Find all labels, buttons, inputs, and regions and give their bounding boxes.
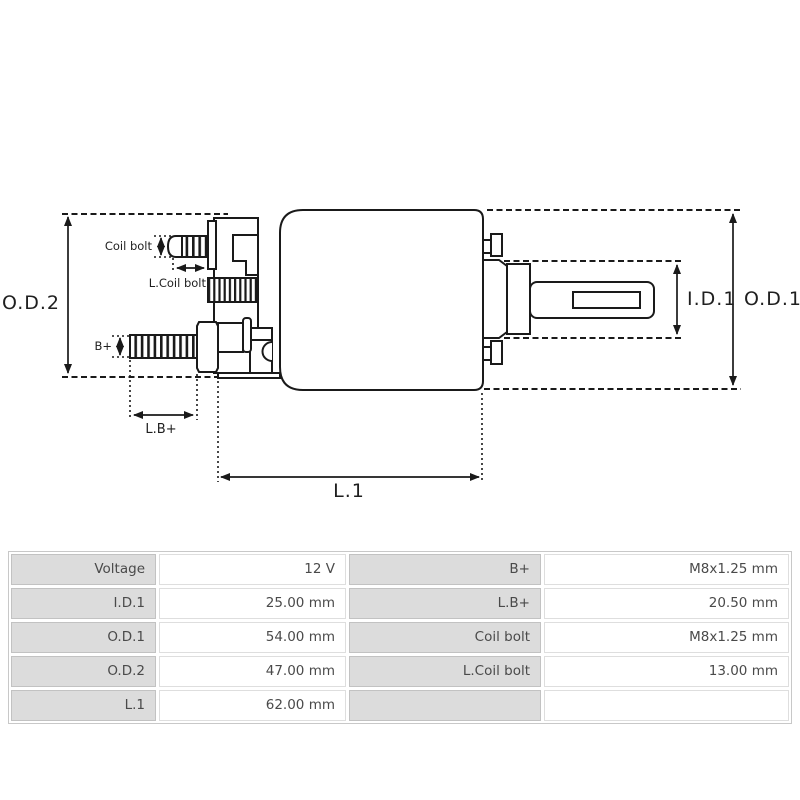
spec-label-coilbolt: Coil bolt <box>349 622 541 653</box>
spec-label-lcoilbolt: L.Coil bolt <box>349 656 541 687</box>
spec-value-lcoilbolt: 13.00 mm <box>544 656 789 687</box>
shaft-slot <box>573 292 640 308</box>
od1-label: O.D.1 <box>744 288 800 310</box>
spec-label-bplus: B+ <box>349 554 541 585</box>
solenoid-body <box>280 210 483 390</box>
spec-value-bplus: M8x1.25 mm <box>544 554 789 585</box>
page: O.D.2 O.D.1 I.D.1 L.1 Coil bolt L.Coil b… <box>0 0 800 800</box>
coil-bolt-label: Coil bolt <box>105 239 153 253</box>
solenoid-diagram: O.D.2 O.D.1 I.D.1 L.1 Coil bolt L.Coil b… <box>0 0 800 545</box>
spec-label-id1: I.D.1 <box>11 588 156 619</box>
spec-value-empty <box>544 690 789 721</box>
spec-value-id1: 25.00 mm <box>159 588 346 619</box>
spec-value-lbplus: 20.50 mm <box>544 588 789 619</box>
spec-label-od2: O.D.2 <box>11 656 156 687</box>
l1-label: L.1 <box>333 480 365 502</box>
spec-label-l1: L.1 <box>11 690 156 721</box>
spec-label-lbplus: L.B+ <box>349 588 541 619</box>
spec-value-od2: 47.00 mm <box>159 656 346 687</box>
spec-label-od1: O.D.1 <box>11 622 156 653</box>
l-b-plus-label: L.B+ <box>145 422 176 437</box>
plunger-shaft <box>483 260 654 338</box>
b-plus-label: B+ <box>94 339 112 353</box>
spec-value-od1: 54.00 mm <box>159 622 346 653</box>
spec-value-l1: 62.00 mm <box>159 690 346 721</box>
spec-label-empty <box>349 690 541 721</box>
spec-table: Voltage 12 V B+ M8x1.25 mm I.D.1 25.00 m… <box>8 551 792 724</box>
spec-label-voltage: Voltage <box>11 554 156 585</box>
l-coil-bolt-label: L.Coil bolt <box>149 276 207 290</box>
spec-value-coilbolt: M8x1.25 mm <box>544 622 789 653</box>
od2-label: O.D.2 <box>2 292 60 314</box>
id1-label: I.D.1 <box>687 288 736 310</box>
spec-value-voltage: 12 V <box>159 554 346 585</box>
